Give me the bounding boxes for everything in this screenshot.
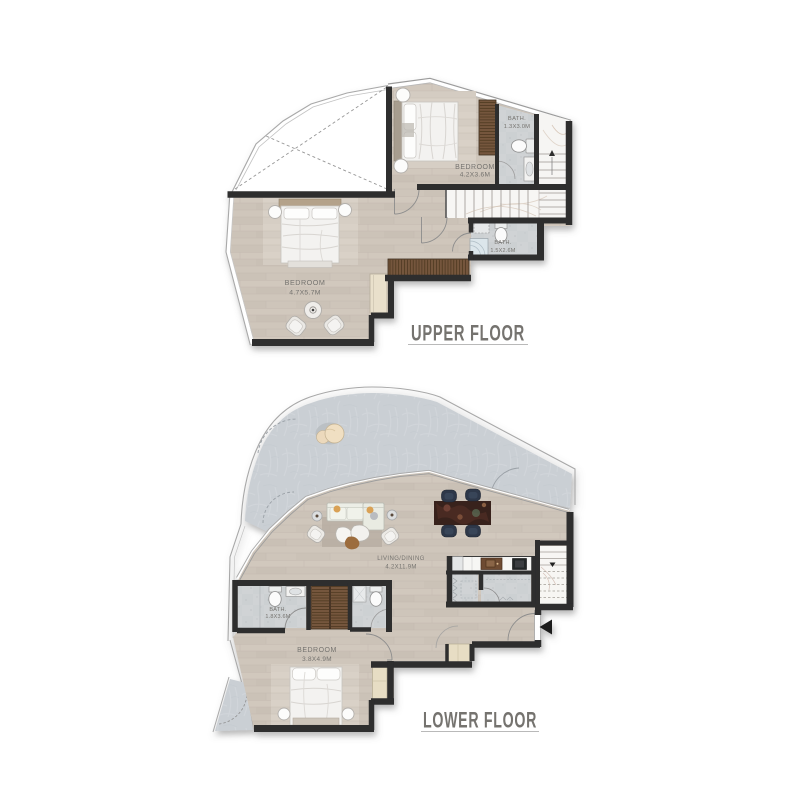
svg-text:BATH.: BATH. [494,240,511,246]
svg-text:BEDROOM: BEDROOM [297,647,337,654]
svg-text:BATH.: BATH. [508,116,526,122]
svg-text:4.2X11.9M: 4.2X11.9M [385,565,416,571]
svg-text:LIVING/DINING: LIVING/DINING [377,556,425,562]
svg-text:4.7X5.7M: 4.7X5.7M [289,290,321,297]
svg-text:4.2X3.6M: 4.2X3.6M [460,172,491,179]
svg-text:BEDROOM: BEDROOM [455,164,495,171]
svg-text:LOWER FLOOR: LOWER FLOOR [423,708,537,733]
svg-text:1.3X3.0M: 1.3X3.0M [504,124,530,130]
svg-text:1.5X2.6M: 1.5X2.6M [490,248,515,254]
svg-text:3.8X4.9M: 3.8X4.9M [302,656,332,663]
svg-text:BATH.: BATH. [269,607,286,613]
svg-text:UPPER FLOOR: UPPER FLOOR [411,321,525,346]
svg-text:BEDROOM: BEDROOM [285,278,326,287]
